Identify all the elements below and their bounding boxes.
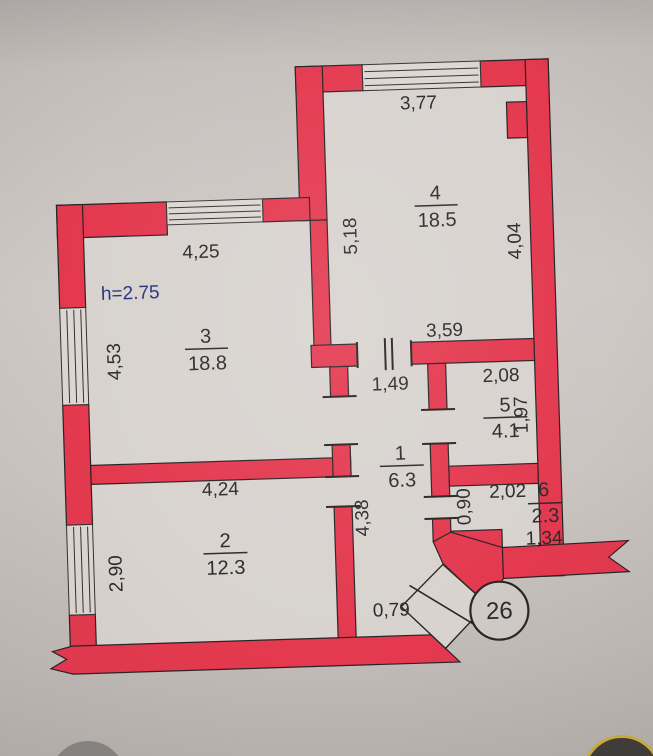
apartment-number-circle: 26 (469, 581, 529, 641)
room-1-area: 6.3 (388, 469, 416, 492)
window-room4-top (362, 61, 481, 91)
dim-room4-right: 4,04 (504, 222, 526, 260)
room-5-number: 5 (499, 394, 511, 416)
extract-text-icon: T (585, 753, 653, 756)
room-4-area: 18.5 (417, 209, 457, 232)
floor-plan-photo: 26 3,77 4 18.5 5,18 4,04 4,25 h=2.75 4,5… (0, 0, 653, 756)
room-3-area: 18.8 (188, 352, 228, 375)
dim-room6-left: 0,90 (454, 488, 476, 526)
wall-segment (56, 205, 85, 309)
wall-segment (311, 344, 358, 367)
window-room3-left (60, 308, 89, 406)
dim-hall-entry: 0,79 (373, 599, 411, 621)
room-2-area: 12.3 (206, 557, 246, 580)
wall-segment (310, 220, 331, 352)
dim-room2-top: 4,24 (202, 479, 240, 501)
room-2-number: 2 (219, 530, 231, 552)
window-room2-left (66, 524, 95, 615)
dim-room3-top: 4,25 (182, 241, 220, 263)
dim-hall-left: 4,38 (352, 499, 374, 537)
apartment-number: 26 (486, 597, 514, 625)
wall-break-right (500, 541, 629, 579)
wall-segment (332, 444, 351, 477)
wall-pier (506, 102, 527, 139)
wall-segment (428, 363, 447, 410)
dim-room6-top: 2,02 (489, 481, 527, 503)
dim-room4-top: 3,77 (400, 92, 438, 114)
window-room3-top (166, 199, 263, 225)
dim-hall-door: 1,49 (371, 373, 409, 395)
wall-segment (63, 404, 93, 525)
dim-room5-right: 1,97 (511, 396, 533, 434)
dim-room4-left: 5,18 (340, 217, 362, 255)
dim-room5-top: 2,08 (482, 365, 520, 387)
dim-room3-left: 4,53 (104, 343, 126, 381)
wall-segment (430, 443, 450, 497)
dim-room2-left: 2,90 (105, 555, 127, 593)
room-6-number: 6 (538, 479, 550, 501)
dim-room6-bottom: 1,34 (525, 528, 563, 550)
height-note: h=2.75 (101, 282, 160, 305)
room-1-number: 1 (395, 443, 407, 465)
room-6-area: 2.3 (531, 505, 559, 528)
room-3-number: 3 (200, 326, 212, 348)
floor-plan: 26 3,77 4 18.5 5,18 4,04 4,25 h=2.75 4,5… (0, 0, 653, 756)
wall-segment (411, 338, 535, 364)
room-4-number: 4 (429, 182, 441, 204)
wall-segment (262, 197, 310, 221)
wall-segment (69, 614, 96, 648)
dim-room4-bottom: 3,59 (426, 320, 464, 342)
